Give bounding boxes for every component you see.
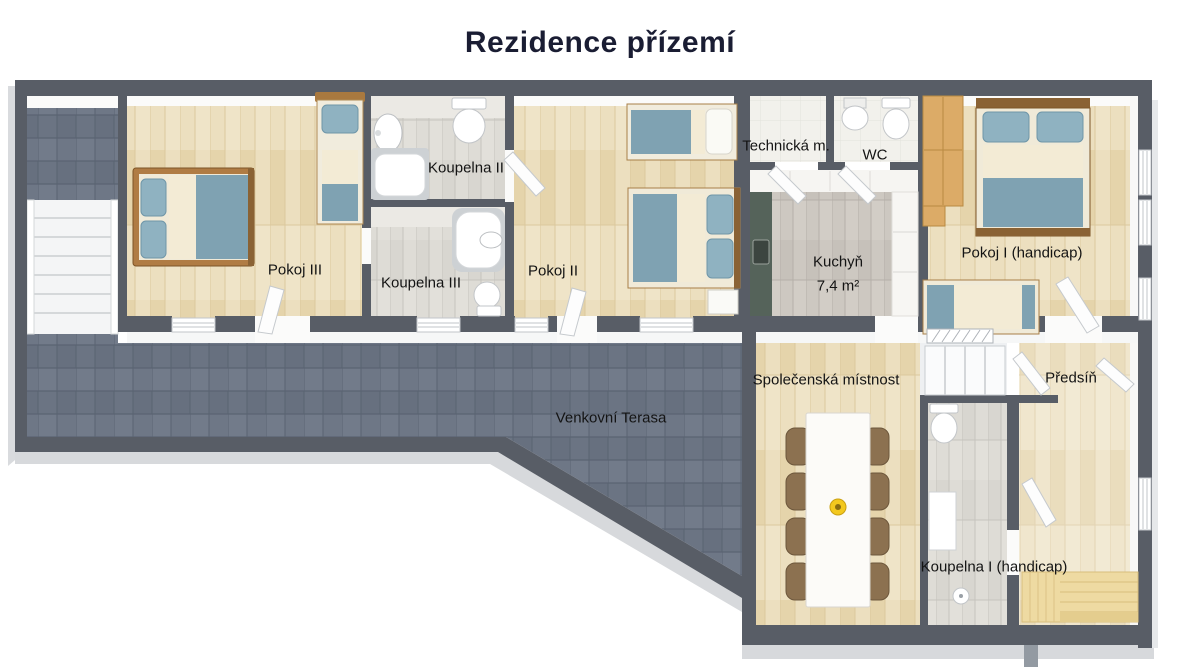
window <box>1139 200 1151 245</box>
entry-step <box>1024 645 1038 667</box>
single-bed <box>627 104 737 160</box>
upper-floor-stairs <box>925 346 1005 395</box>
kitchen-appliance-column <box>892 192 918 316</box>
entry-tile-landing <box>27 108 118 200</box>
window <box>1139 278 1151 320</box>
window <box>515 318 548 332</box>
double-bed <box>628 188 740 288</box>
window <box>417 318 460 332</box>
room-label-pokoj-i: Pokoj I (handicap) <box>962 245 1083 262</box>
toilet <box>930 404 958 443</box>
radiator <box>927 329 993 343</box>
floor-plan-page: Rezidence přízemí Pokoj III Koupelna II … <box>0 0 1200 669</box>
room-label-wc: WC <box>863 147 888 164</box>
nightstand <box>708 290 738 314</box>
bathtub <box>371 148 429 200</box>
wardrobe <box>923 96 963 226</box>
window <box>1139 150 1151 195</box>
room-label-koupelna-ii: Koupelna II <box>428 160 504 177</box>
vanity <box>929 492 956 550</box>
room-label-pokoj-ii: Pokoj II <box>528 263 578 280</box>
room-label-spolecenska: Společenská místnost <box>753 372 900 389</box>
sink <box>480 232 502 248</box>
table-decor <box>830 499 846 515</box>
room-label-kuchyn: Kuchyň <box>813 254 863 271</box>
sink <box>374 114 402 152</box>
single-bed <box>923 280 1039 334</box>
room-label-terasa: Venkovní Terasa <box>556 410 667 427</box>
window <box>1139 478 1151 530</box>
double-bed <box>976 98 1090 236</box>
room-label-technicka: Technická m. <box>742 138 830 155</box>
toilet <box>882 98 910 139</box>
plan-title: Rezidence přízemí <box>465 26 735 60</box>
sink <box>842 98 868 130</box>
room-label-predsin: Předsíň <box>1045 370 1097 387</box>
toilet <box>474 282 501 316</box>
room-label-kuchyn-area: 7,4 m² <box>817 278 860 295</box>
double-bed <box>133 168 254 266</box>
window <box>172 318 215 332</box>
toilet <box>452 98 486 143</box>
pokoj-ii-furniture <box>627 104 740 314</box>
sauna-bench <box>1022 572 1138 622</box>
single-bed <box>315 92 365 224</box>
room-label-koupelna-i: Koupelna I (handicap) <box>921 559 1068 576</box>
kitchen-sink <box>753 240 769 264</box>
window <box>640 318 693 332</box>
room-label-pokoj-iii: Pokoj III <box>268 262 322 279</box>
room-label-koupelna-iii: Koupelna III <box>381 275 461 292</box>
shower-drain <box>953 588 969 604</box>
